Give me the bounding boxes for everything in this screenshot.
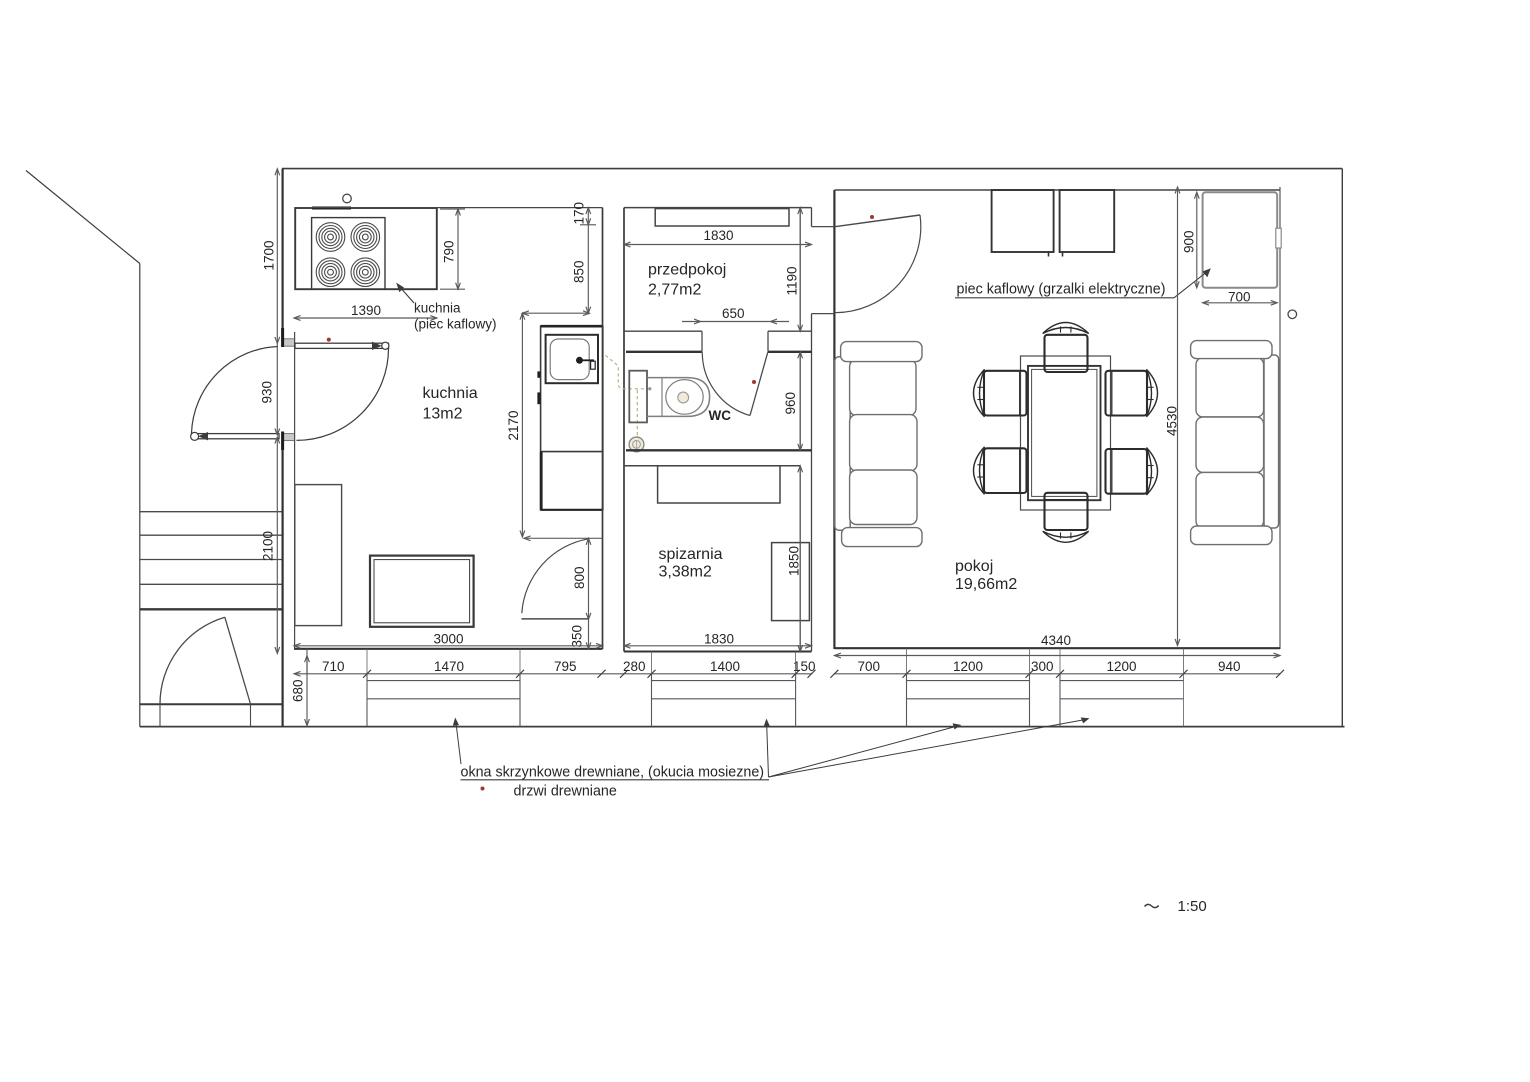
svg-text:1200: 1200 bbox=[1107, 659, 1137, 674]
svg-text:drzwi drewniane: drzwi drewniane bbox=[514, 784, 617, 800]
svg-text:3000: 3000 bbox=[434, 632, 464, 647]
svg-text:1390: 1390 bbox=[351, 303, 381, 318]
svg-text:spizarnia: spizarnia bbox=[659, 546, 723, 563]
svg-text:13m2: 13m2 bbox=[423, 406, 463, 423]
svg-text:960: 960 bbox=[783, 392, 798, 415]
svg-text:930: 930 bbox=[260, 381, 275, 404]
svg-text:2100: 2100 bbox=[261, 531, 276, 561]
svg-text:170: 170 bbox=[572, 202, 587, 225]
svg-text:700: 700 bbox=[858, 659, 881, 674]
svg-text:WC: WC bbox=[709, 408, 732, 423]
svg-text:19,66m2: 19,66m2 bbox=[955, 576, 1017, 593]
svg-text:350: 350 bbox=[570, 625, 585, 648]
svg-text:1190: 1190 bbox=[785, 266, 800, 295]
svg-text:150: 150 bbox=[793, 659, 816, 674]
svg-text:790: 790 bbox=[442, 240, 457, 263]
svg-text:przedpokoj: przedpokoj bbox=[648, 262, 726, 279]
svg-text:1400: 1400 bbox=[710, 659, 740, 674]
svg-text:pokoj: pokoj bbox=[955, 558, 993, 575]
svg-text:3,38m2: 3,38m2 bbox=[659, 564, 712, 581]
svg-text:795: 795 bbox=[554, 659, 577, 674]
svg-text:940: 940 bbox=[1218, 659, 1241, 674]
svg-text:1830: 1830 bbox=[704, 228, 734, 243]
svg-text:700: 700 bbox=[1228, 290, 1251, 305]
svg-text:650: 650 bbox=[722, 306, 745, 321]
svg-text:okna skrzynkowe drewniane, (ok: okna skrzynkowe drewniane, (okucia mosie… bbox=[461, 765, 765, 781]
svg-text:kuchnia: kuchnia bbox=[414, 301, 461, 316]
svg-text:4340: 4340 bbox=[1041, 633, 1071, 648]
svg-text:(piec kaflowy): (piec kaflowy) bbox=[414, 317, 497, 332]
svg-text:900: 900 bbox=[1182, 230, 1197, 253]
svg-text:1470: 1470 bbox=[434, 659, 464, 674]
svg-text:280: 280 bbox=[623, 659, 646, 674]
svg-text:kuchnia: kuchnia bbox=[423, 385, 478, 402]
svg-text:300: 300 bbox=[1031, 659, 1054, 674]
svg-text:1700: 1700 bbox=[262, 240, 277, 270]
svg-text:1830: 1830 bbox=[704, 632, 734, 647]
svg-text:680: 680 bbox=[291, 679, 306, 702]
svg-text:850: 850 bbox=[572, 260, 587, 283]
svg-text:800: 800 bbox=[572, 566, 587, 589]
svg-text:piec kaflowy (grzalki elektryc: piec kaflowy (grzalki elektryczne) bbox=[957, 282, 1166, 298]
svg-text:1:50: 1:50 bbox=[1178, 898, 1207, 915]
svg-text:4530: 4530 bbox=[1165, 406, 1180, 436]
svg-text:1850: 1850 bbox=[787, 546, 802, 576]
svg-text:710: 710 bbox=[322, 659, 345, 674]
svg-text:2170: 2170 bbox=[506, 410, 521, 440]
svg-text:1200: 1200 bbox=[953, 659, 983, 674]
svg-text:2,77m2: 2,77m2 bbox=[648, 282, 701, 299]
